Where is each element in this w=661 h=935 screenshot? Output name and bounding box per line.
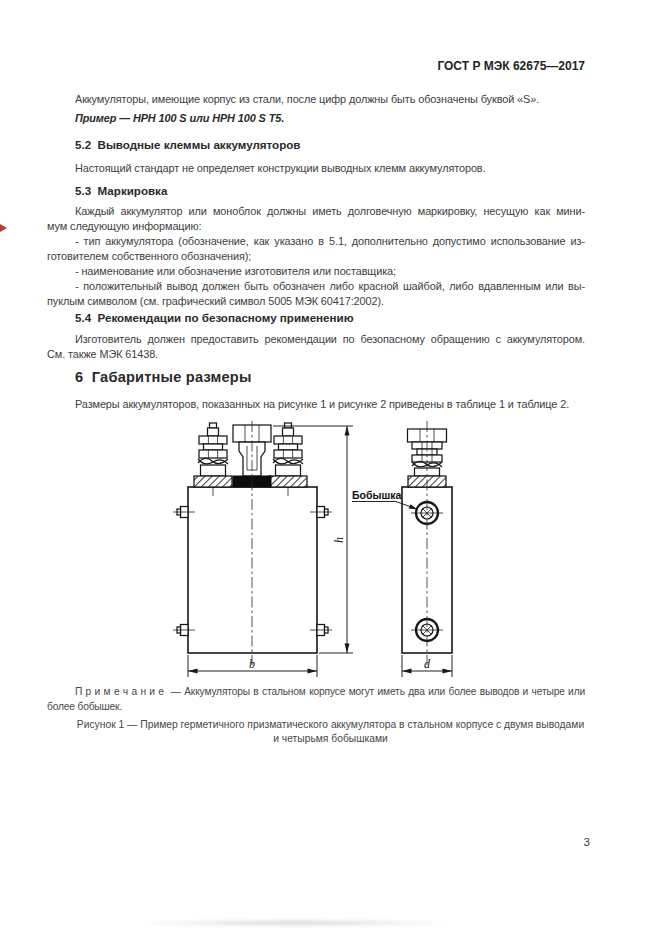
figure-note-line: П р и м е ч а н и е — Аккумуляторы в ста… xyxy=(47,684,585,699)
page-number: 3 xyxy=(560,836,590,848)
front-view: h b xyxy=(173,421,353,677)
figure-caption-line: Рисунок 1 — Пример герметичного призмати… xyxy=(0,719,661,730)
margin-red-mark xyxy=(0,224,7,232)
terminal-seal-hatch xyxy=(269,476,307,487)
section-heading-5-2: 5.2 Выводные клеммы аккумуляторов xyxy=(47,138,585,151)
paragraph-5-3-line: - положительный вывод должен быть обозна… xyxy=(47,279,585,294)
boss-label: Бобышка xyxy=(352,489,401,501)
paragraph-5-3-line: - тип аккумулятора (обозначение, как ука… xyxy=(47,234,585,249)
side-view: Бобышка d xyxy=(352,421,452,677)
battery-case-front xyxy=(188,487,317,653)
figure-note-line: более бобышек. xyxy=(47,699,585,714)
paragraph-5-4-line: См. также МЭК 61438. xyxy=(47,347,585,362)
paragraph-example: Пример — НРН 100 S или НРН 100 S Т5. xyxy=(47,111,585,126)
doc-code-header: ГОСТ Р МЭК 62675—2017 xyxy=(47,59,585,73)
paragraph-5-3-line: - наименование или обозначение изготовит… xyxy=(47,264,585,279)
paragraph-5-2: Настоящий стандарт не определяет констру… xyxy=(47,161,585,176)
battery-case-side xyxy=(402,487,452,653)
figure-caption-line: и четырьмя бобышками xyxy=(0,733,661,744)
figure-drawing: h b xyxy=(90,418,470,685)
paragraph-5-3-line: Каждый аккумулятор или моноблок должны и… xyxy=(47,204,585,219)
figure-svg: h b xyxy=(90,418,470,685)
section-heading-5-4: 5.4 Рекомендации по безопасному применен… xyxy=(47,311,585,324)
terminal-post-left xyxy=(194,423,232,487)
dimension-b-label: b xyxy=(249,657,255,671)
terminal-post-side xyxy=(408,429,447,487)
paragraph-5-3-line: мум следующую информацию: xyxy=(47,219,585,234)
section-heading-6: 6 Габаритные размеры xyxy=(47,369,585,385)
section-heading-5-3: 5.3 Маркировка xyxy=(47,184,585,197)
paragraph-intro: Аккумуляторы, имеющие корпус из стали, п… xyxy=(47,92,585,107)
paragraph-5-3-line: пуклым символом (см. графический символ … xyxy=(47,294,585,309)
dimension-d-label: d xyxy=(424,657,431,671)
terminal-post-right xyxy=(269,423,307,487)
paragraph-5-4-line: Изготовитель должен предоставить рекомен… xyxy=(47,332,585,347)
paragraph-6: Размеры аккумуляторов, показанных на рис… xyxy=(47,397,585,412)
dimension-b: b xyxy=(188,655,317,677)
document-page: ГОСТ Р МЭК 62675—2017 Аккумуляторы, имею… xyxy=(0,0,661,935)
scan-smudge xyxy=(130,919,460,927)
terminal-seal-hatch xyxy=(194,476,232,487)
dimension-h-label: h xyxy=(332,537,346,543)
paragraph-5-3-line: готовителем собственного обозначения); xyxy=(47,249,585,264)
dimension-d: d xyxy=(402,655,452,677)
